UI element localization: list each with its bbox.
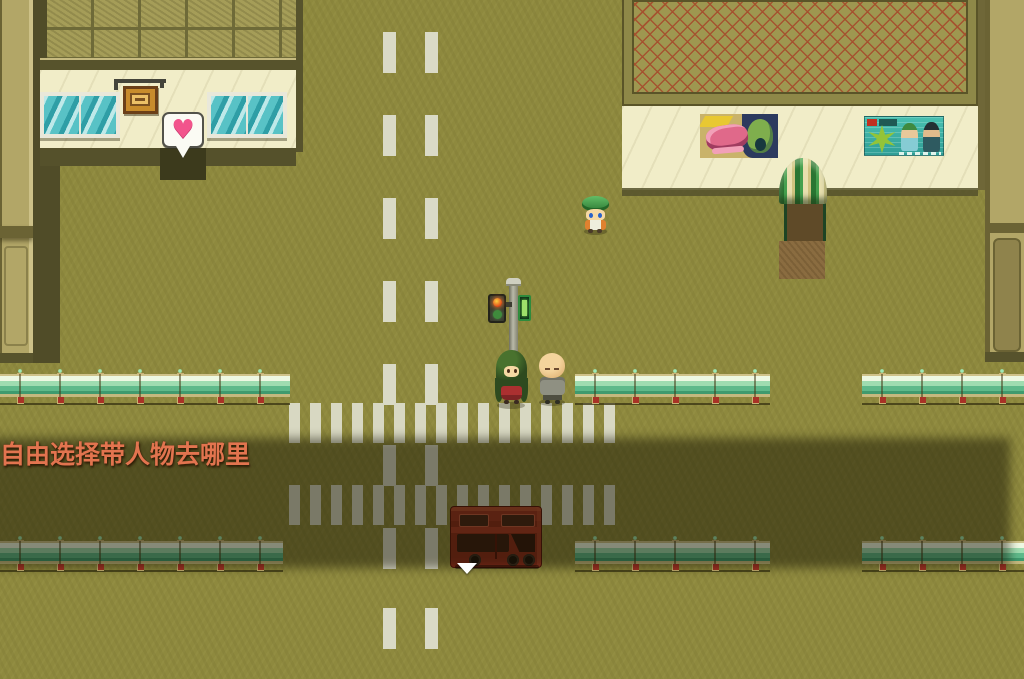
red-dress xyxy=(501,386,522,400)
npc-foot xyxy=(545,400,550,404)
guardrail-fence xyxy=(575,368,770,406)
guardrail-fence xyxy=(862,368,1024,406)
npc-eye xyxy=(514,369,517,373)
pedestrian-signal xyxy=(518,295,531,321)
destination-cursor-icon[interactable] xyxy=(457,563,477,574)
npc-bald-man[interactable] xyxy=(537,353,568,404)
red-light xyxy=(493,298,502,307)
game-viewport[interactable]: ♥ xyxy=(0,0,1024,679)
instruction-text: 自由选择带人物去哪里 xyxy=(0,440,250,470)
traffic-light-cap xyxy=(506,278,521,286)
npc-body xyxy=(540,377,565,395)
npc-green-hair-girl[interactable] xyxy=(495,348,528,407)
npc-foot xyxy=(555,400,560,404)
npc-foot xyxy=(504,400,509,404)
npc-foot xyxy=(514,400,519,404)
npc-eye xyxy=(598,213,602,218)
npc-shadow xyxy=(497,402,525,409)
npc-foot xyxy=(588,229,593,233)
bald-head xyxy=(539,353,565,378)
green-light xyxy=(493,310,502,319)
npc-foot xyxy=(597,229,602,233)
guardrail-fence xyxy=(0,368,290,406)
npc-eye xyxy=(545,368,550,370)
npc-green-cap-kid[interactable] xyxy=(582,194,609,233)
npc-eye xyxy=(554,368,559,370)
traffic-signal-box xyxy=(488,294,506,323)
npc-eye xyxy=(507,369,510,373)
npc-eye xyxy=(589,213,593,218)
